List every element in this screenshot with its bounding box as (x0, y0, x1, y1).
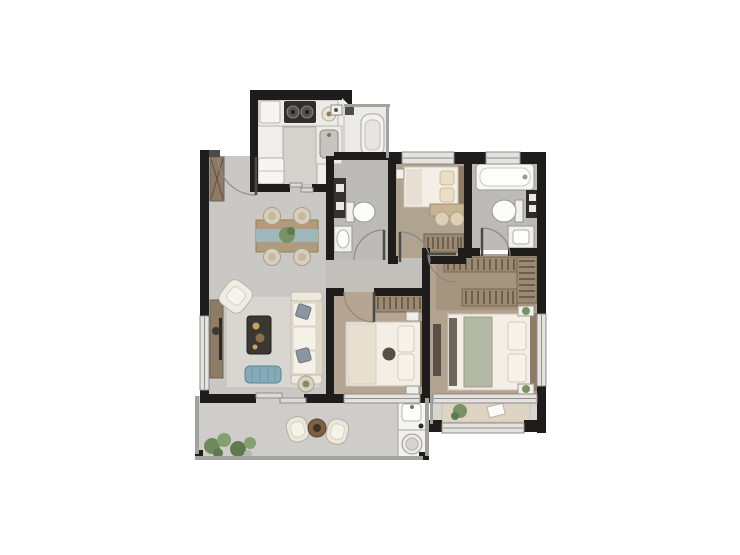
blue-pouf (245, 366, 281, 383)
water-heater-panel (365, 120, 380, 150)
wall-bathroom-1-left (326, 156, 334, 260)
balcony-slider-panel-2 (280, 398, 306, 403)
nightstand-1a (406, 312, 419, 321)
toilet-2-bowl (492, 200, 516, 222)
wall-master-left (422, 248, 430, 396)
kitchen-island (283, 127, 317, 185)
bed-2-throw (406, 169, 422, 205)
nightstand-plant-1 (522, 307, 530, 315)
vent-dot (334, 108, 338, 112)
burner-right-dot (305, 110, 309, 114)
dining-chair-3-seat (268, 253, 276, 261)
sofa-cushion-2 (293, 327, 316, 350)
wall-bed2-bottom-right (430, 256, 466, 264)
glass-utility-right (386, 104, 389, 158)
wall-master-top (458, 248, 480, 256)
wall-bed1-top-right (374, 288, 426, 296)
nightstand-plant-2 (522, 385, 530, 393)
sofa-pillow-2 (296, 347, 312, 363)
utility-box-icon (345, 107, 354, 115)
laundry-dot (419, 424, 424, 429)
small-appliance (260, 101, 280, 123)
wall-bed1-bottom-left (330, 394, 344, 403)
fixture-icon-1 (529, 194, 536, 201)
centerpiece-plant-leaf (287, 227, 295, 235)
burner-left-dot (291, 110, 295, 114)
pouf-2b (450, 212, 464, 226)
balcony-plant-3 (230, 441, 246, 457)
bed-1-throw (348, 324, 376, 384)
kitchen-slider-panel-1 (290, 183, 302, 187)
master-console (433, 324, 441, 376)
floor-plan-canvas (0, 0, 740, 555)
balcony-table-decor (313, 424, 321, 432)
bed-2-pillow-1 (440, 171, 454, 185)
fixture-icon-2 (529, 205, 536, 212)
bed-2-pillow-2 (440, 188, 454, 202)
wall-right-outer (537, 152, 546, 433)
bed-2-headboard (458, 166, 465, 208)
coffee-table-decor-1 (253, 323, 260, 330)
wall-bed1-left (326, 288, 334, 396)
pouf-2a (435, 212, 449, 226)
floor-plan (0, 0, 740, 555)
glass-balcony-bottom (195, 456, 423, 460)
wall-utility-bottom (334, 152, 390, 160)
balcony-plant-4 (244, 437, 256, 449)
side-table-plant (303, 381, 310, 388)
master-pillow-2 (508, 354, 526, 382)
master-pillow-1 (508, 322, 526, 350)
wall-kitchen-top (250, 90, 342, 100)
balcony-plant-2 (217, 433, 231, 447)
glass-balcony-left (195, 396, 199, 454)
sink-1-basin (337, 230, 349, 248)
wall-entry-top (208, 150, 220, 157)
dining-chair-4-seat (298, 253, 306, 261)
coffee-table-decor-3 (253, 345, 258, 350)
tv-screen (219, 318, 222, 360)
dining-chair-2-seat (298, 212, 306, 220)
master-bed-headboard (530, 313, 537, 391)
master-wardrobe-right (517, 257, 537, 303)
glass-utility-top (344, 104, 390, 107)
balcony-slider-panel-1 (256, 393, 282, 398)
wall-bed2-bottom-left (388, 256, 398, 264)
master-bed-bench (449, 318, 457, 386)
glass-balcony-right (425, 398, 429, 456)
bed-1-pillow-1 (398, 326, 414, 352)
wall-bay-nub-right (524, 420, 537, 432)
wall-bed2-bath2-divider (464, 164, 472, 258)
toilet-1-bowl (353, 202, 375, 222)
master-wardrobe-right-hangers (519, 261, 535, 297)
sofa-armrest-top (291, 292, 322, 301)
bed-1-pillow-2 (398, 354, 414, 380)
sofa-back (316, 294, 322, 382)
wall-bathroom-1-right (388, 152, 396, 264)
kitchen-faucet (327, 133, 331, 137)
bathtub-drain (523, 175, 528, 180)
laundry-tower-icon-2 (336, 202, 344, 210)
console-decor (212, 327, 220, 335)
laundry-faucet (410, 405, 414, 409)
bay-plant-leaf (451, 412, 459, 420)
coffee-table-decor-2 (256, 334, 265, 343)
wardrobe-1 (374, 294, 424, 312)
wall-living-bottom-left (200, 394, 256, 403)
wall-living-bottom-right (304, 394, 334, 403)
bedside-table-2 (396, 169, 404, 179)
laundry-tower-icon-1 (336, 184, 344, 192)
washer-drum-inner (406, 438, 418, 450)
dining-chair-1-seat (268, 212, 276, 220)
master-bed-throw (464, 317, 492, 387)
vanity-2-basin (513, 230, 529, 244)
bed-1-cushion (383, 348, 396, 361)
kitchen-slider-panel-2 (301, 188, 313, 192)
